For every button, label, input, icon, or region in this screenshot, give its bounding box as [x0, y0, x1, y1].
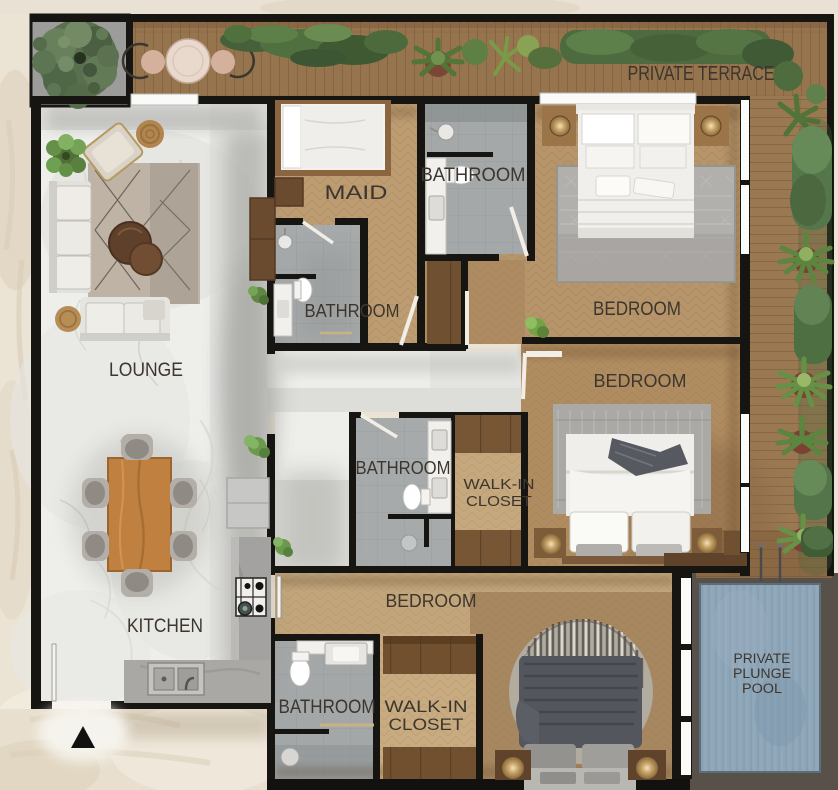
- svg-text:WALK-IN: WALK-IN: [385, 697, 468, 716]
- svg-text:PRIVATE: PRIVATE: [734, 651, 791, 666]
- svg-text:MAID: MAID: [325, 183, 388, 204]
- svg-text:BATHROOM: BATHROOM: [305, 301, 400, 321]
- svg-text:KITCHEN: KITCHEN: [127, 616, 203, 637]
- svg-text:WALK-IN: WALK-IN: [464, 476, 535, 493]
- svg-text:BEDROOM: BEDROOM: [594, 371, 687, 391]
- svg-text:BATHROOM: BATHROOM: [279, 697, 376, 718]
- svg-text:PRIVATE TERRACE: PRIVATE TERRACE: [628, 63, 775, 85]
- svg-text:BATHROOM: BATHROOM: [356, 458, 451, 478]
- svg-text:PLUNGE: PLUNGE: [733, 666, 791, 681]
- svg-text:BATHROOM: BATHROOM: [421, 165, 526, 186]
- svg-text:LOUNGE: LOUNGE: [109, 360, 183, 381]
- svg-text:BEDROOM: BEDROOM: [386, 591, 477, 611]
- svg-text:CLOSET: CLOSET: [389, 715, 464, 734]
- svg-text:BEDROOM: BEDROOM: [593, 299, 681, 320]
- svg-text:CLOSET: CLOSET: [466, 493, 532, 510]
- svg-text:POOL: POOL: [742, 681, 783, 696]
